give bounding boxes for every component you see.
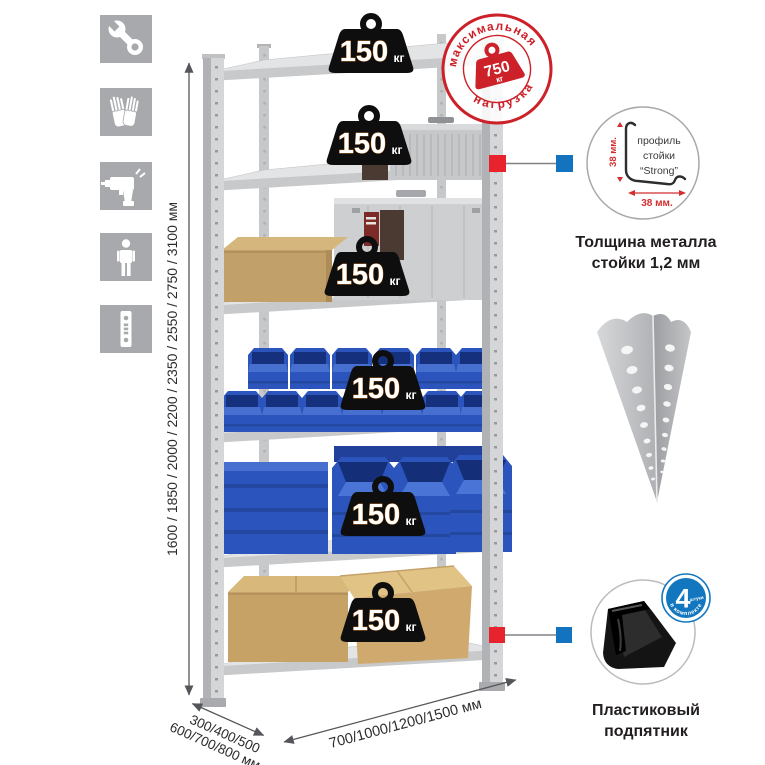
person-icon	[100, 233, 152, 281]
foot-caption-line2: подпятник	[561, 722, 731, 743]
height-dimension: 1600 / 1850 / 2000 / 2200 / 2350 / 2550 …	[164, 63, 189, 695]
included-count-badge: 4 штуки в комплекте	[661, 573, 711, 623]
product-infographic: { "colors": { "accent_red": "#cd2129", "…	[0, 0, 765, 765]
gloves-icon	[100, 88, 152, 136]
marker-red-square-bottom	[489, 627, 505, 643]
wrench-icon	[100, 15, 152, 63]
blue-crate	[216, 462, 328, 554]
angle-post-image	[587, 302, 702, 532]
height-dimension-label: 1600 / 1850 / 2000 / 2200 / 2350 / 2550 …	[164, 202, 180, 556]
marker-red-square-top	[489, 155, 506, 172]
cardboard-box-left	[228, 576, 364, 662]
weight-value: 150	[336, 259, 384, 291]
profile-caption-line2: стойки 1,2 мм	[561, 254, 731, 275]
feature-tile-person	[100, 233, 152, 281]
weight-badge-2: 150 кг	[327, 108, 412, 165]
callout-bottom	[489, 627, 572, 643]
weight-value: 150	[352, 605, 400, 637]
weight-unit: кг	[389, 274, 400, 288]
weight-value: 150	[352, 373, 400, 405]
width-dimension: 700/1000/1200/1500 мм	[284, 680, 522, 763]
max-load-stamp: максимальная нагрузка 750 кг	[431, 3, 563, 135]
marker-blue-square-top	[556, 155, 573, 172]
feature-tile-perforated-profile	[100, 305, 152, 353]
feature-tile-wrench	[100, 15, 152, 63]
profile-caption-line1: Толщина металла	[561, 233, 731, 254]
weight-value: 150	[338, 128, 386, 160]
foot-caption-line1: Пластиковый	[561, 701, 731, 722]
depth-dimension: 300/400/500 600/700/800 мм	[168, 699, 272, 765]
profile-dim-vertical: 38 мм.	[608, 137, 619, 167]
weight-value: 150	[352, 499, 400, 531]
feature-tile-drill	[100, 162, 152, 210]
perforated-profile-icon	[100, 305, 152, 353]
canister-stripe	[366, 217, 376, 220]
marker-blue-square-bottom	[556, 627, 572, 643]
weight-unit: кг	[405, 620, 416, 634]
canister-stripe	[366, 222, 376, 225]
weight-unit: кг	[391, 143, 402, 157]
profile-detail-circle: 38 мм. 38 мм. профиль стойки “Strong”	[583, 106, 703, 226]
profile-label-2: стойки	[643, 150, 675, 162]
weight-unit: кг	[405, 388, 416, 402]
callout-top	[489, 155, 573, 172]
weight-value: 150	[340, 36, 388, 68]
profile-dim-horizontal: 38 мм.	[641, 198, 673, 209]
weight-unit: кг	[405, 514, 416, 528]
weight-badge-1: 150 кг	[329, 16, 414, 73]
profile-label-1: профиль	[637, 135, 681, 147]
foot-caption: Пластиковый подпятник	[561, 701, 731, 743]
weight-unit: кг	[393, 51, 404, 65]
drill-icon	[100, 162, 152, 210]
profile-caption: Толщина металла стойки 1,2 мм	[561, 233, 731, 275]
feature-tile-gloves	[100, 88, 152, 136]
profile-label-3: “Strong”	[640, 165, 678, 177]
